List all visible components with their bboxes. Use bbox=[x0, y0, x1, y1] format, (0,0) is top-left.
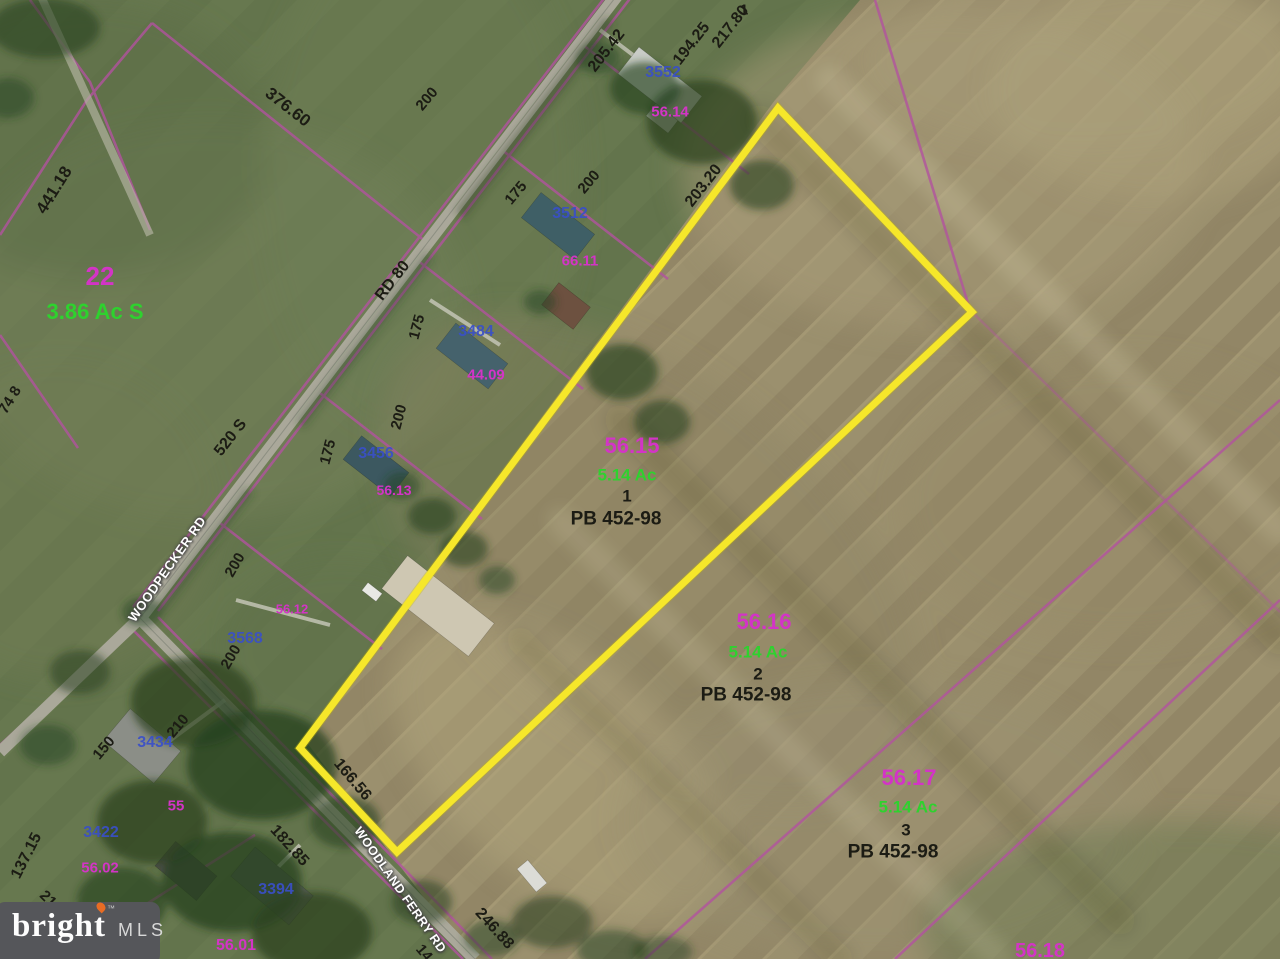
parcel-id: 56.16 bbox=[736, 611, 791, 633]
logo-wordmark: bright™ bbox=[12, 908, 106, 945]
plat-book-ref: PB 452-98 bbox=[701, 686, 792, 705]
parcel-acreage: 5.14 Ac bbox=[879, 799, 938, 816]
plat-book-ref: PB 452-98 bbox=[571, 510, 662, 529]
parcel-id: 56.15 bbox=[604, 435, 659, 457]
tax-parcel-id: 55 bbox=[168, 799, 185, 814]
parcel-acreage: 5.14 Ac bbox=[598, 467, 657, 484]
lot-number-label: 2 bbox=[753, 666, 762, 683]
house-number: 3456 bbox=[358, 446, 394, 462]
aerial-plat-map: 217.80 194.25 205.42 1 376.60 441.18 74 … bbox=[0, 0, 1280, 959]
tax-parcel-id: 56.12 bbox=[276, 603, 309, 616]
parcel-acreage: 3.86 Ac S bbox=[46, 301, 143, 323]
tax-parcel-id: 44.09 bbox=[467, 368, 505, 383]
tax-parcel-id: 56.01 bbox=[216, 938, 256, 954]
house-number: 3434 bbox=[137, 735, 173, 751]
tax-parcel-id: 56.13 bbox=[376, 483, 411, 497]
tax-parcel-id: 56.18 bbox=[1015, 941, 1065, 959]
parcel-acreage: 5.14 Ac bbox=[729, 644, 788, 661]
house-number: 3422 bbox=[83, 825, 119, 841]
trademark-symbol: ™ bbox=[107, 904, 115, 913]
tax-parcel-id: 56.14 bbox=[651, 105, 689, 120]
bright-mls-logo: bright™ MLS bbox=[0, 902, 160, 959]
house-number: 3484 bbox=[458, 324, 494, 340]
house-number: 3512 bbox=[552, 206, 588, 222]
house-number: 3394 bbox=[258, 882, 294, 898]
tax-parcel-id: 66.11 bbox=[562, 254, 599, 269]
lot-number-label: 1 bbox=[622, 488, 631, 505]
parcel-id: 56.17 bbox=[881, 767, 936, 789]
lot-number-label: 3 bbox=[901, 822, 910, 839]
logo-suffix: MLS bbox=[118, 920, 167, 941]
parcel-id: 22 bbox=[86, 263, 115, 289]
tax-parcel-id: 56.02 bbox=[81, 861, 119, 876]
house-number: 3552 bbox=[645, 65, 681, 81]
plat-book-ref: PB 452-98 bbox=[848, 843, 939, 862]
lot-number-label: 1 bbox=[740, 3, 748, 18]
house-number: 3568 bbox=[227, 631, 263, 647]
